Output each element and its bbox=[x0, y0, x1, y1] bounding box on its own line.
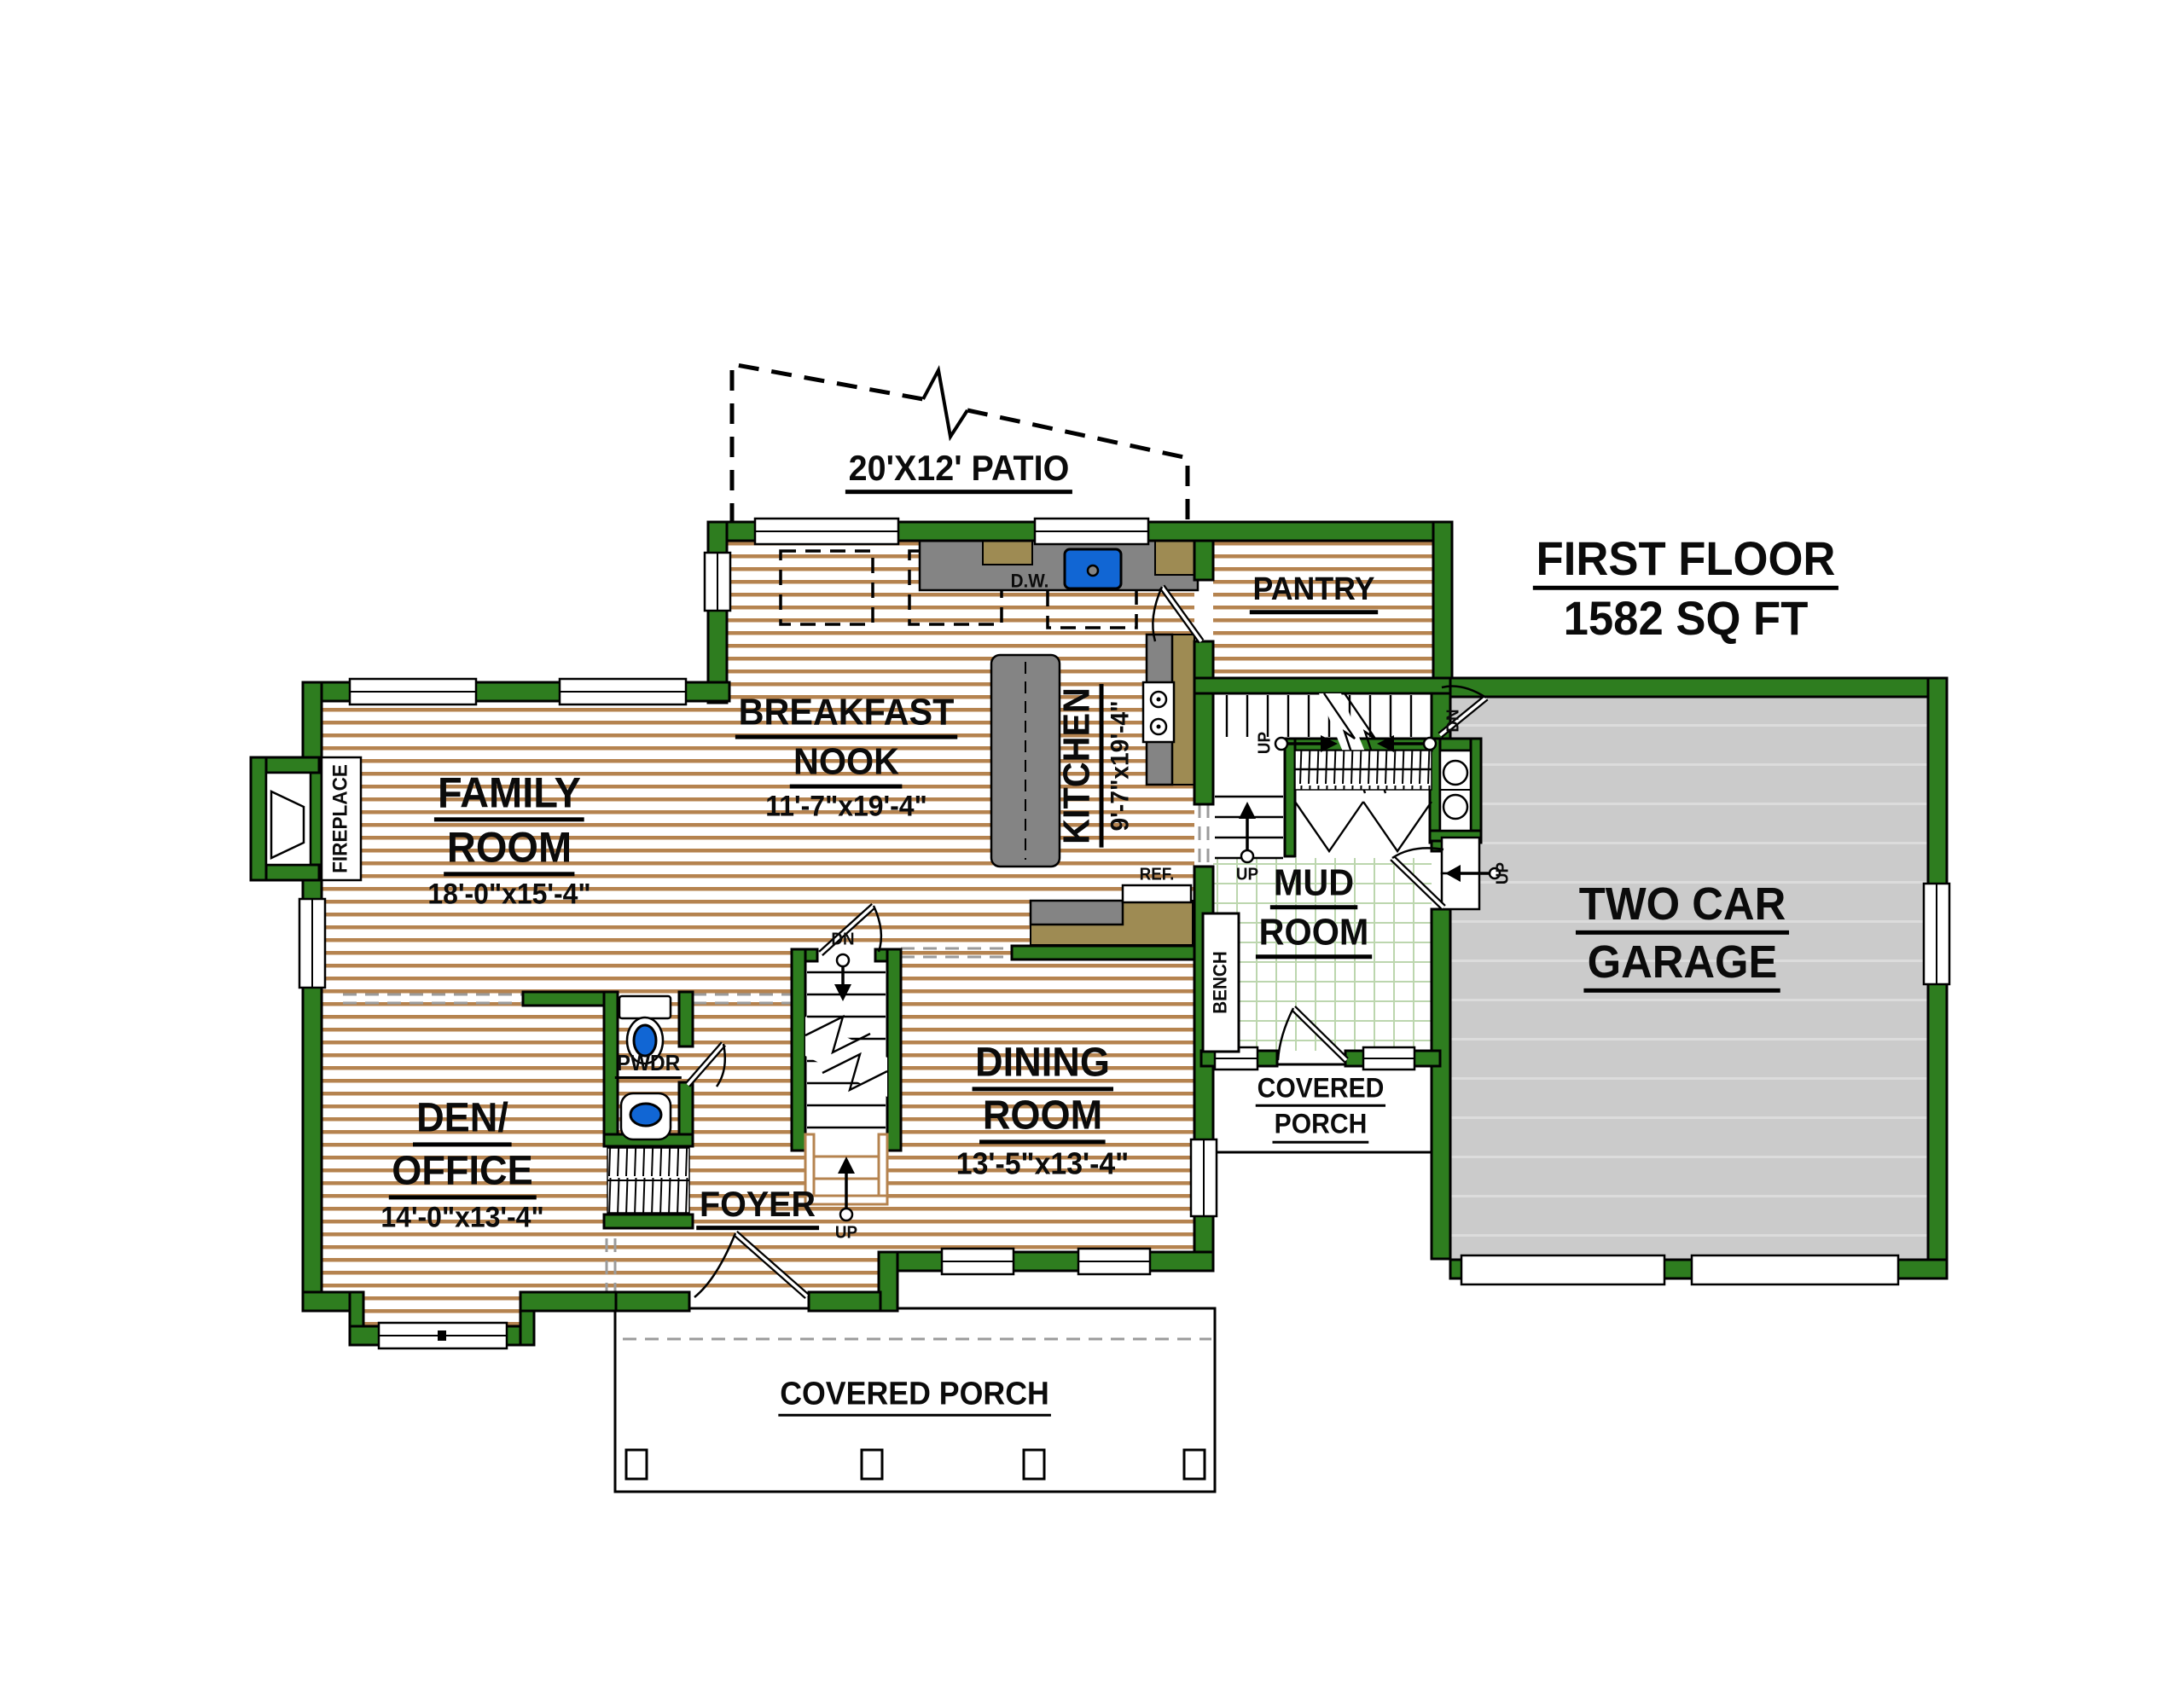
room-label-breakfast: BREAKFAST NOOK 11'-7"x19'-4" bbox=[735, 692, 957, 824]
patio-outline bbox=[732, 364, 1188, 524]
title-floor: FIRST FLOOR bbox=[1533, 534, 1838, 590]
room-label-pwdr: PWDR bbox=[615, 1050, 682, 1081]
label-front-porch: COVERED PORCH bbox=[778, 1377, 1050, 1418]
porch-column bbox=[1024, 1450, 1044, 1479]
title-block: FIRST FLOOR 1582 SQ FT bbox=[1533, 532, 1838, 645]
dn-label-central: DN bbox=[831, 930, 854, 951]
title-area: 1582 SQ FT bbox=[1564, 594, 1809, 643]
porch-column bbox=[1184, 1450, 1205, 1479]
dryer-icon bbox=[1443, 795, 1467, 819]
up-label-garage-steps: UP bbox=[1493, 862, 1514, 884]
up-label-stairs: UP bbox=[1255, 732, 1276, 754]
label-side-porch: COVERED PORCH bbox=[1256, 1073, 1386, 1145]
porch-column bbox=[862, 1450, 882, 1479]
room-label-pantry: PANTRY bbox=[1250, 571, 1378, 616]
refrigerator-label: REF. bbox=[1140, 865, 1175, 886]
up-label-central: UP bbox=[835, 1223, 857, 1244]
garage-door-right bbox=[1692, 1255, 1898, 1284]
up-label-hall: UP bbox=[1236, 865, 1258, 886]
garage-door-left bbox=[1461, 1255, 1664, 1284]
room-label-den: DEN/ OFFICE 14'-0"x13'-4" bbox=[380, 1095, 543, 1234]
toilet-tank bbox=[619, 996, 671, 1018]
room-label-family: FAMILY ROOM 18'-0"x15'-4" bbox=[427, 768, 590, 911]
room-label-foyer: FOYER bbox=[696, 1184, 819, 1232]
patio-label: 20'X12' PATIO bbox=[845, 448, 1072, 496]
fireplace-label: FIREPLACE bbox=[329, 764, 354, 873]
room-label-dining: DINING ROOM 13'-5"x13'-4" bbox=[956, 1040, 1129, 1180]
dishwasher-label: D.W. bbox=[1011, 571, 1049, 594]
porch-column bbox=[626, 1450, 647, 1479]
refrigerator-icon bbox=[1123, 885, 1191, 902]
faucet-icon bbox=[1088, 565, 1098, 576]
dn-label-stairs: DN bbox=[1443, 709, 1465, 732]
room-label-garage: TWO CAR GARAGE bbox=[1576, 878, 1789, 994]
room-label-kitchen: KITCHEN 9'-7"x19'-4" bbox=[1056, 684, 1136, 847]
bench-label: BENCH bbox=[1210, 951, 1233, 1014]
floor-plan: 20'X12' PATIO FIRST FLOOR 1582 SQ FT FAM… bbox=[0, 0, 2184, 1687]
washer-icon bbox=[1443, 761, 1467, 785]
room-label-mud: MUD ROOM bbox=[1256, 861, 1372, 960]
